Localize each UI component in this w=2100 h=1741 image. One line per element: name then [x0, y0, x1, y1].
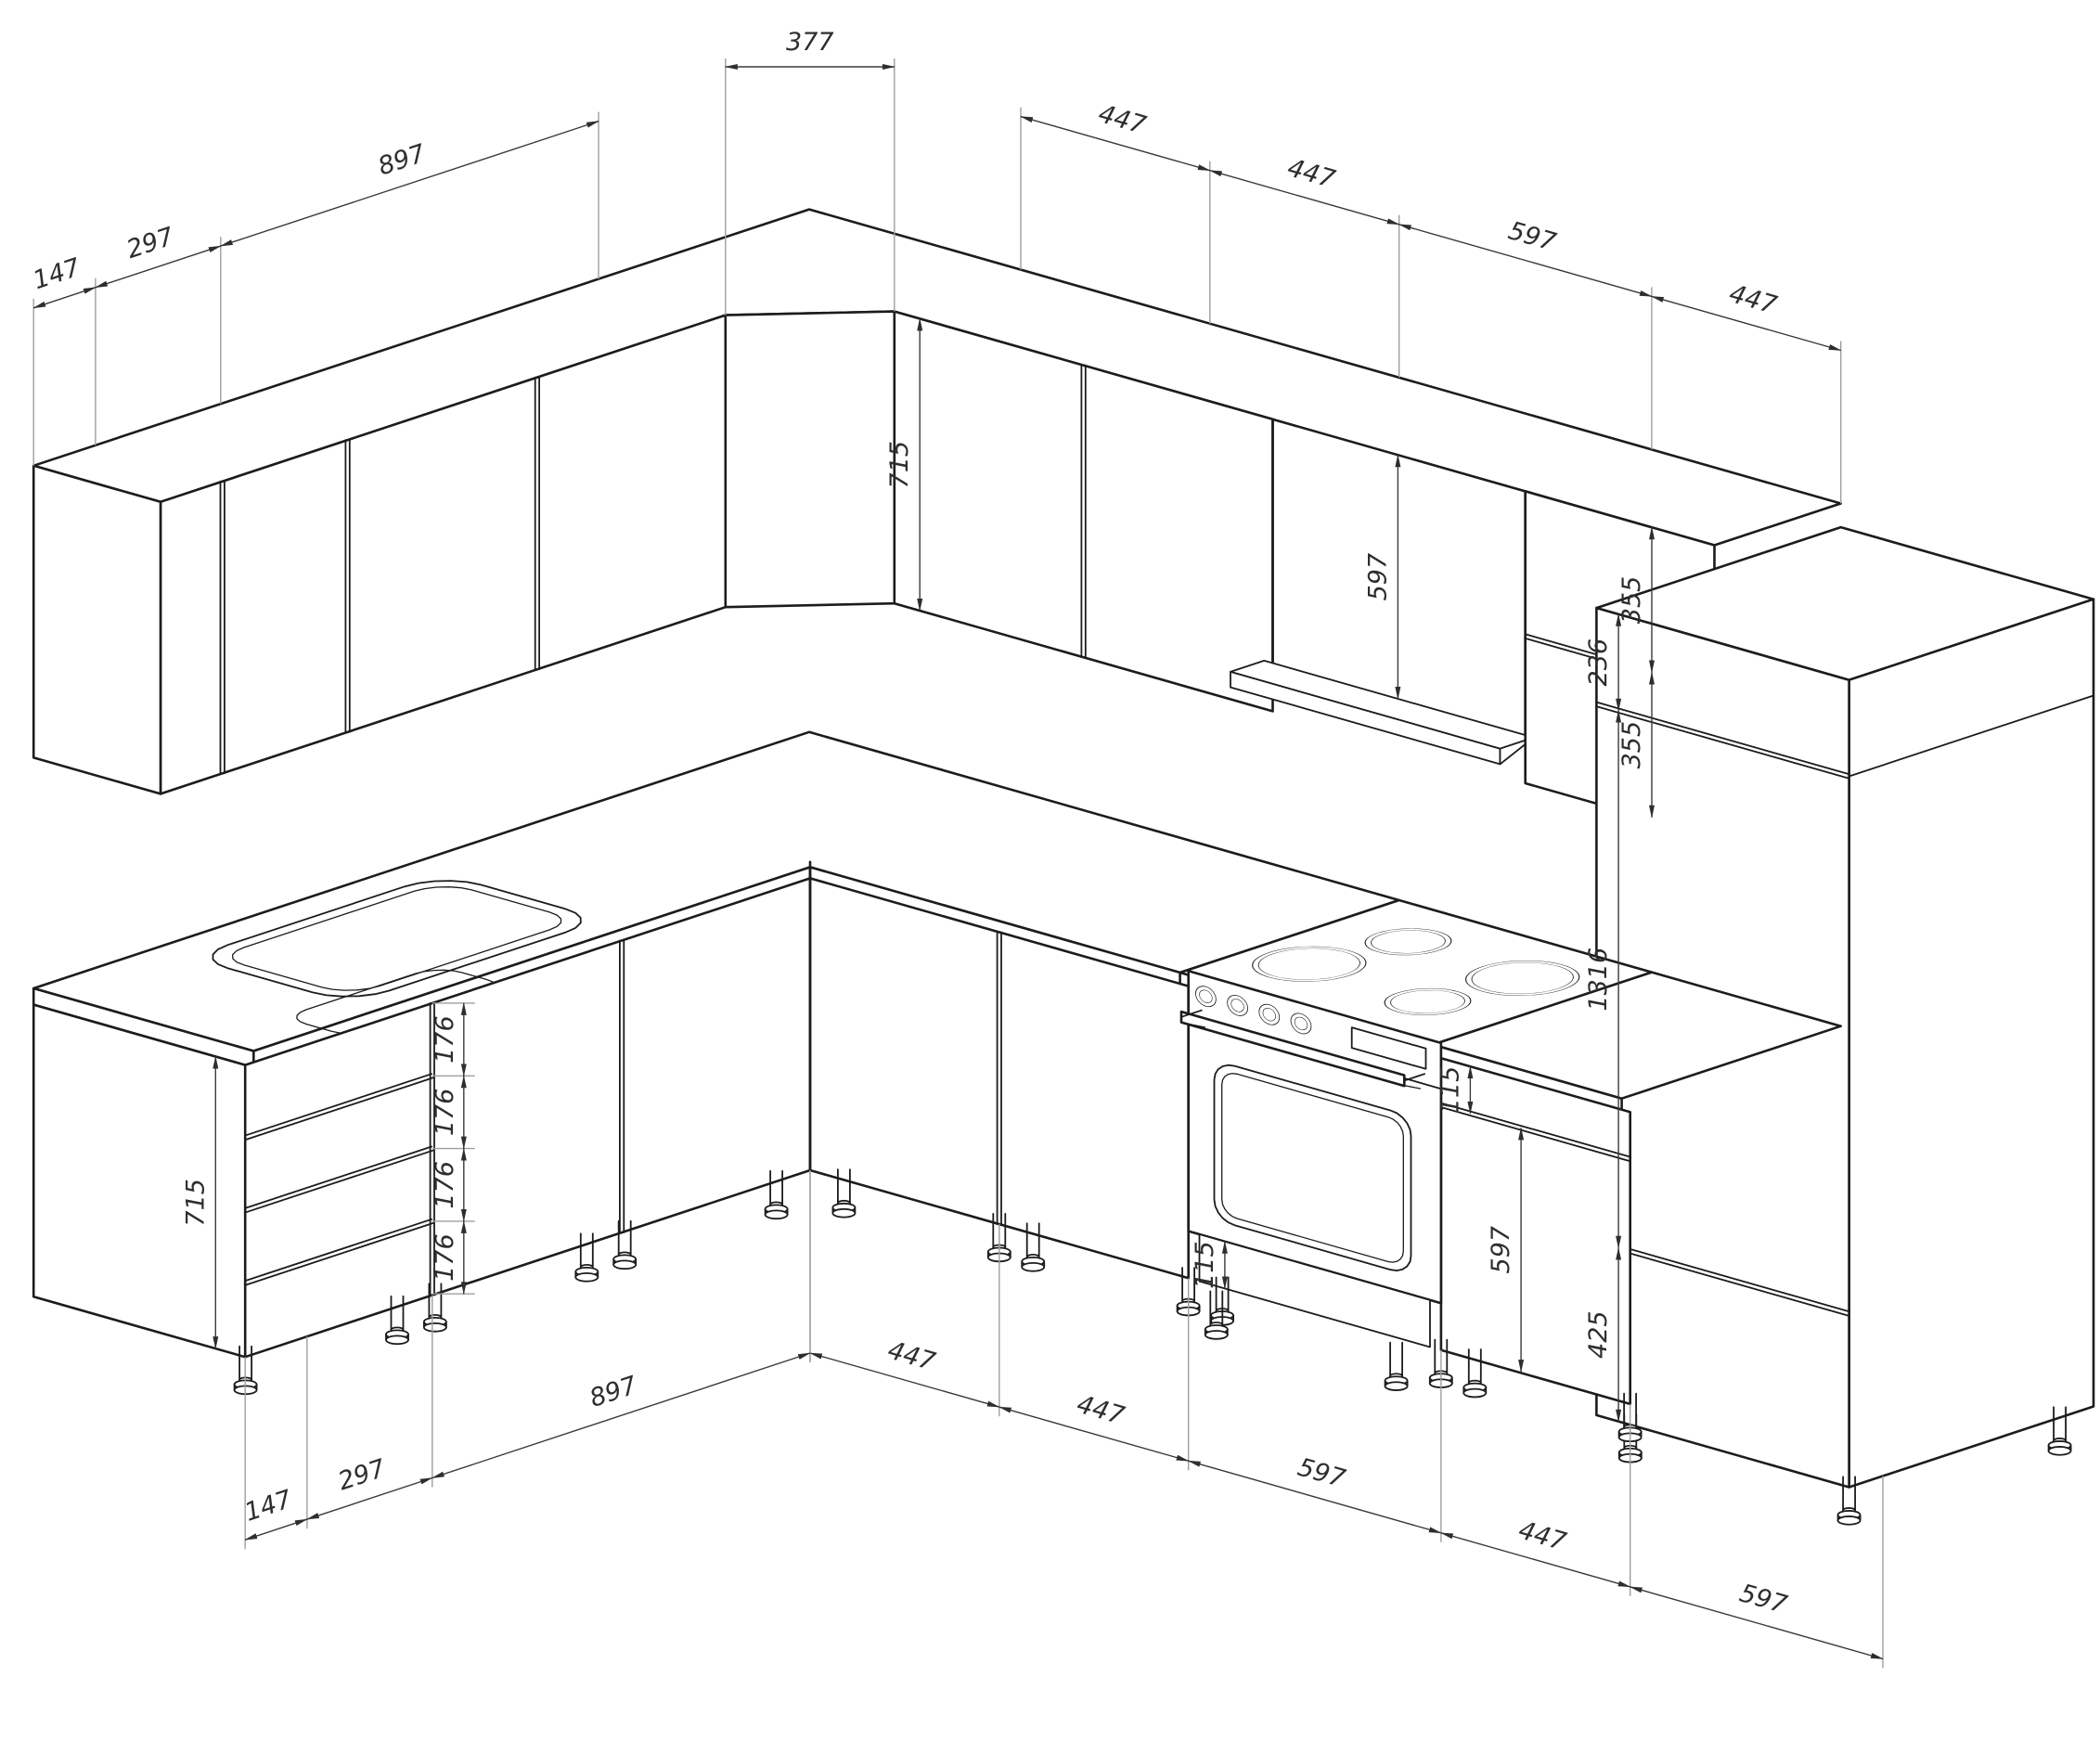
dimension-label: 355 — [1617, 721, 1646, 769]
dimension-label: 115 — [1436, 1066, 1464, 1115]
dimension-label: 597 — [1363, 553, 1392, 601]
dimension-label: 447 — [1074, 1390, 1127, 1431]
dimension-label: 147 — [30, 253, 84, 296]
dimension-label: 597 — [1505, 216, 1559, 257]
dimension-label: 297 — [335, 1454, 390, 1497]
shelf-top — [1230, 661, 1534, 749]
dimension-label: 115 — [1191, 1241, 1219, 1289]
leg-foot — [766, 1210, 788, 1219]
dimension-label: 715 — [885, 441, 914, 489]
dimension-label: 377 — [786, 28, 834, 57]
dimension-line — [221, 122, 599, 247]
dimension-label: 897 — [586, 1371, 641, 1413]
dimension-label: 176 — [431, 1161, 459, 1209]
dimension-label: 176 — [431, 1015, 459, 1064]
leg-foot — [1022, 1263, 1044, 1271]
leg-foot — [575, 1273, 598, 1282]
tall-right-side — [1849, 600, 2094, 1488]
dimension-label: 355 — [1617, 576, 1646, 625]
dimension-label: 147 — [241, 1485, 296, 1528]
leg-foot — [424, 1323, 446, 1332]
upper-corner-front — [726, 312, 895, 608]
leg-foot — [1205, 1331, 1228, 1339]
dimension-label: 597 — [1736, 1579, 1790, 1619]
dimension-label: 236 — [1584, 638, 1613, 687]
leg-foot — [1838, 1516, 1861, 1525]
leg-foot — [1385, 1382, 1408, 1390]
dimension-label: 297 — [123, 222, 178, 264]
dimension-label: 447 — [884, 1336, 938, 1377]
dimension-label: 897 — [375, 139, 430, 182]
leg-foot — [1463, 1389, 1486, 1398]
dimension-label: 597 — [1487, 1226, 1515, 1274]
dimension-line — [432, 1353, 810, 1478]
upper-left-end-panel — [33, 466, 161, 794]
dimension-label: 597 — [1295, 1453, 1348, 1494]
upper-wall-cabinets — [33, 210, 1841, 838]
dimension-label: 447 — [1095, 99, 1149, 140]
leg-foot — [2049, 1447, 2071, 1455]
dimension-label: 425 — [1584, 1310, 1613, 1359]
leg-foot — [613, 1260, 636, 1269]
leg-foot — [386, 1335, 408, 1344]
dimension-label: 447 — [1726, 279, 1780, 320]
dimension-label: 447 — [1284, 153, 1338, 194]
dimension-label: 176 — [431, 1233, 459, 1282]
base-left-end-panel — [33, 1005, 245, 1358]
dimension-label: 715 — [181, 1179, 210, 1227]
isometric-kitchen-drawing: 4474475974471472978973774474475974475971… — [0, 0, 2100, 1741]
dimension-label: 176 — [431, 1089, 459, 1137]
dimension-label: 447 — [1515, 1515, 1569, 1556]
leg-foot — [832, 1209, 855, 1218]
kitchen-dimension-drawing: 4474475974471472978973774474475974475971… — [0, 0, 2100, 1741]
dimension-label: 1316 — [1584, 948, 1613, 1012]
